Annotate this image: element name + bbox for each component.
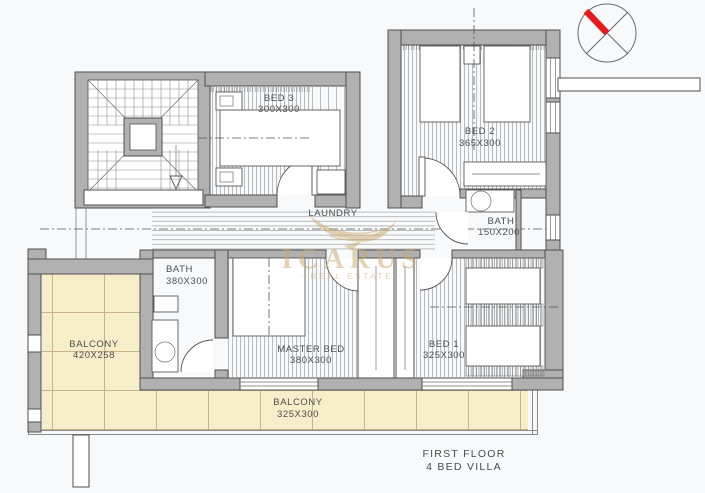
balcony-left-area: [42, 274, 140, 390]
balcony-bottom-label: BALCONY: [273, 397, 322, 408]
bed1-bed-top: [466, 268, 540, 304]
floor-plan: BED 3 300X300 BED 2 365X300 LAUNDRY BATH…: [0, 0, 705, 493]
bed1-label: BED 1: [429, 339, 459, 350]
watermark-brand: ICARUS: [282, 244, 423, 275]
bed1-size: 325X300: [423, 350, 465, 361]
bath-small-size: 150X200: [478, 227, 520, 238]
bed3-closet: [317, 170, 345, 194]
balcony-window-1: [28, 335, 41, 352]
watermark-tagline: - REAL ESTATE -: [300, 272, 403, 281]
bath-master-size: 380X300: [166, 276, 208, 287]
master-label: MASTER BED: [277, 344, 344, 355]
bed2-bed-left: [420, 46, 460, 122]
bath-small-label: BATH: [488, 216, 515, 227]
laundry-label: LAUNDRY: [308, 208, 357, 219]
stair-landing: [84, 190, 203, 205]
bed3-size: 300X300: [258, 104, 300, 115]
master-size: 380X300: [290, 355, 332, 366]
bed2-bed-right: [484, 46, 530, 122]
bed2-size: 365X300: [459, 138, 501, 149]
stairwell: [75, 72, 210, 208]
balcony-window-2: [28, 409, 41, 422]
balcony-bottom-size: 325X300: [277, 409, 319, 420]
bed3-label: BED 3: [264, 93, 294, 104]
title-line2: 4 BED VILLA: [426, 461, 502, 473]
bath-master-sink: [154, 296, 178, 312]
bath-small-cistern: [466, 190, 514, 212]
master-sliding-door: [240, 378, 318, 390]
boundary-wall: [558, 78, 700, 91]
pier-stub: [73, 435, 89, 487]
bed1-bed-bottom: [466, 326, 540, 366]
bed2-nightstand: [464, 46, 480, 64]
title-line1: FIRST FLOOR: [422, 448, 505, 460]
balcony-left-label: BALCONY: [69, 339, 118, 350]
bed2-label: BED 2: [465, 126, 495, 137]
floor-plan-drawing: BED 3 300X300 BED 2 365X300 LAUNDRY BATH…: [0, 0, 705, 493]
balcony-left-size: 420X258: [73, 350, 115, 361]
bed1-sliding-door: [422, 378, 512, 390]
bed2-window-2: [546, 102, 560, 133]
drawing-title: FIRST FLOOR 4 BED VILLA: [422, 448, 505, 473]
hall-window: [546, 215, 560, 240]
bath-master-shower: [152, 320, 178, 372]
bed2-door-leaf: [419, 157, 425, 196]
bath-master-label: BATH: [166, 264, 193, 275]
